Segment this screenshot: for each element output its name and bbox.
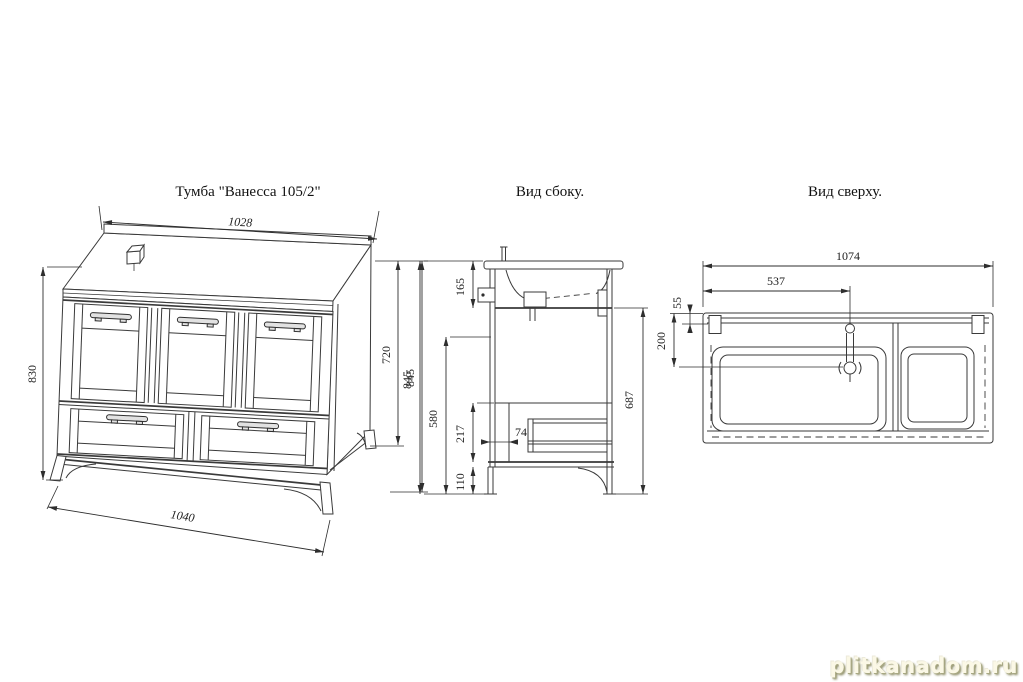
dim-front-top-width: 1028 bbox=[228, 214, 253, 229]
side-view-title: Вид сбоку. bbox=[516, 184, 584, 200]
drawer-section bbox=[495, 403, 612, 462]
side-view: Вид сбоку. bbox=[400, 184, 648, 494]
drawing-page: Тумба "Ванесса 105/2" bbox=[0, 0, 1023, 682]
dim-top-faucet-center: 537 bbox=[767, 274, 785, 288]
top-view: Вид сверху. bbox=[654, 184, 993, 443]
dim-side-inner-height: 687 bbox=[622, 391, 636, 409]
side-counter bbox=[484, 261, 623, 269]
drain-hole bbox=[844, 362, 856, 374]
front-right-leg bbox=[320, 482, 333, 514]
faucet-hole bbox=[846, 324, 855, 333]
dim-top-back-rail: 55 bbox=[670, 297, 684, 309]
front-view: Тумба "Ванесса 105/2" bbox=[25, 184, 428, 556]
sink-section bbox=[478, 270, 610, 321]
dim-top-total-width: 1074 bbox=[836, 249, 860, 263]
watermark-logo: plitkanadom.ru bbox=[830, 654, 1018, 678]
top-view-title: Вид сверху. bbox=[808, 184, 882, 200]
side-cabinet bbox=[478, 247, 623, 494]
technical-drawing: Тумба "Ванесса 105/2" bbox=[0, 0, 1023, 682]
drain-trap bbox=[524, 292, 546, 307]
side-legs bbox=[484, 467, 616, 494]
dim-side-front-height: 580 bbox=[426, 410, 440, 428]
dim-side-sink-zone: 165 bbox=[453, 278, 467, 296]
front-view-title: Тумба "Ванесса 105/2" bbox=[175, 184, 320, 200]
dim-front-body-height: 720 bbox=[379, 346, 393, 364]
dim-side-drawer-zone: 217 bbox=[453, 425, 467, 443]
front-cabinet bbox=[50, 224, 376, 514]
dim-front-bottom-width: 1040 bbox=[170, 507, 196, 525]
dim-side-leg-height: 110 bbox=[453, 473, 467, 491]
dim-front-left-height: 830 bbox=[25, 365, 39, 383]
dim-top-drain-offset: 200 bbox=[654, 332, 668, 350]
front-left-leg bbox=[50, 456, 66, 482]
dim-side-total-height: 845 bbox=[400, 371, 414, 389]
top-cabinet bbox=[703, 313, 993, 443]
dim-side-back-gap: 74 bbox=[515, 425, 527, 439]
